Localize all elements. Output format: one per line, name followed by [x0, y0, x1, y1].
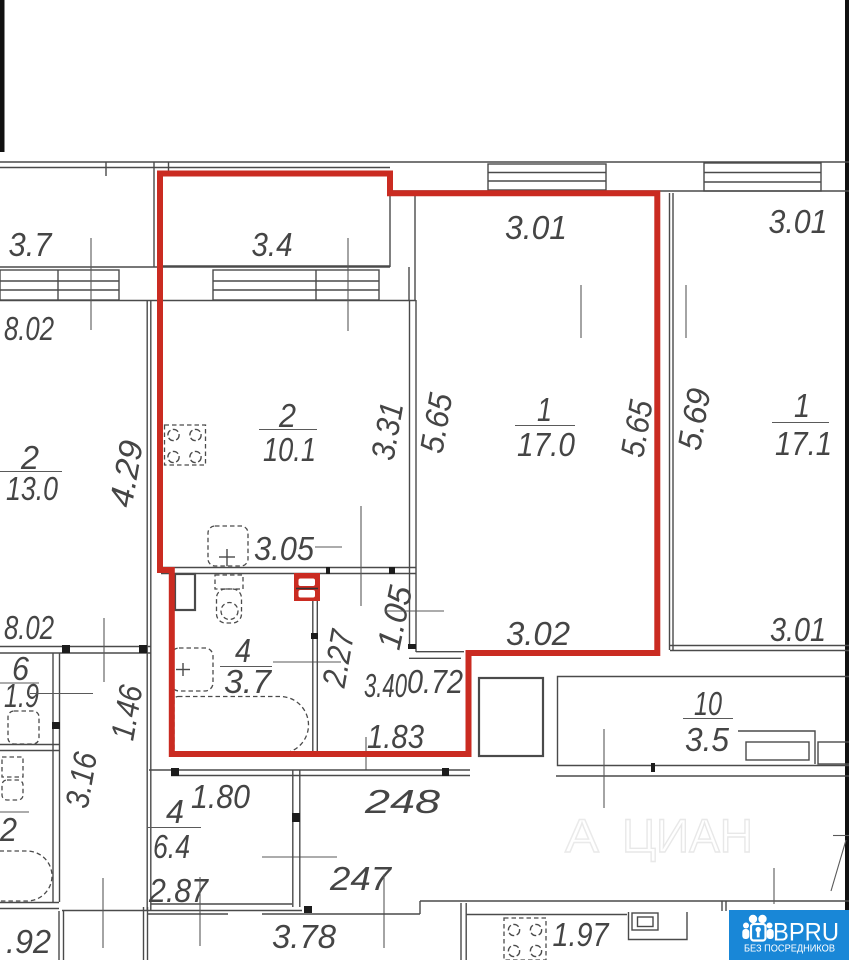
svg-text:3.5: 3.5 — [685, 721, 730, 758]
svg-text:0.72: 0.72 — [407, 663, 463, 700]
svg-text:17.0: 17.0 — [517, 426, 576, 463]
svg-text:ЦИАН: ЦИАН — [622, 809, 753, 862]
svg-text:3.01: 3.01 — [770, 611, 826, 648]
svg-text:17.1: 17.1 — [775, 425, 832, 462]
svg-text:8.02: 8.02 — [4, 310, 54, 347]
svg-text:6.4: 6.4 — [153, 828, 190, 865]
svg-text:1.83: 1.83 — [367, 718, 425, 755]
svg-text:1: 1 — [794, 387, 810, 424]
svg-text:10.1: 10.1 — [263, 431, 316, 468]
svg-text:3.78: 3.78 — [272, 918, 337, 955]
svg-text:1.97: 1.97 — [553, 916, 610, 953]
svg-text:2: 2 — [0, 811, 17, 848]
svg-text:3.01: 3.01 — [505, 209, 567, 246]
svg-text:А: А — [565, 809, 600, 862]
svg-text:13.0: 13.0 — [6, 470, 59, 507]
svg-text:1: 1 — [537, 391, 552, 428]
svg-text:247: 247 — [329, 860, 393, 897]
svg-text:4: 4 — [166, 793, 184, 830]
svg-text:3.7: 3.7 — [9, 226, 54, 263]
svg-text:3.05: 3.05 — [254, 530, 315, 567]
svg-text:248: 248 — [364, 783, 441, 820]
svg-text:10: 10 — [694, 685, 722, 722]
svg-text:3.4: 3.4 — [252, 226, 293, 263]
svg-text:3.02: 3.02 — [506, 615, 570, 652]
svg-text:.92: .92 — [6, 923, 51, 960]
svg-text:БЕЗ ПОСРЕДНИКОВ: БЕЗ ПОСРЕДНИКОВ — [744, 943, 835, 955]
svg-text:2: 2 — [278, 397, 296, 434]
svg-text:3.01: 3.01 — [769, 203, 828, 240]
svg-text:1.80: 1.80 — [191, 778, 251, 815]
svg-text:3.7: 3.7 — [224, 663, 273, 700]
svg-text:1.9: 1.9 — [4, 677, 39, 714]
svg-text:3.40: 3.40 — [364, 667, 407, 704]
svg-text:8.02: 8.02 — [4, 609, 54, 646]
